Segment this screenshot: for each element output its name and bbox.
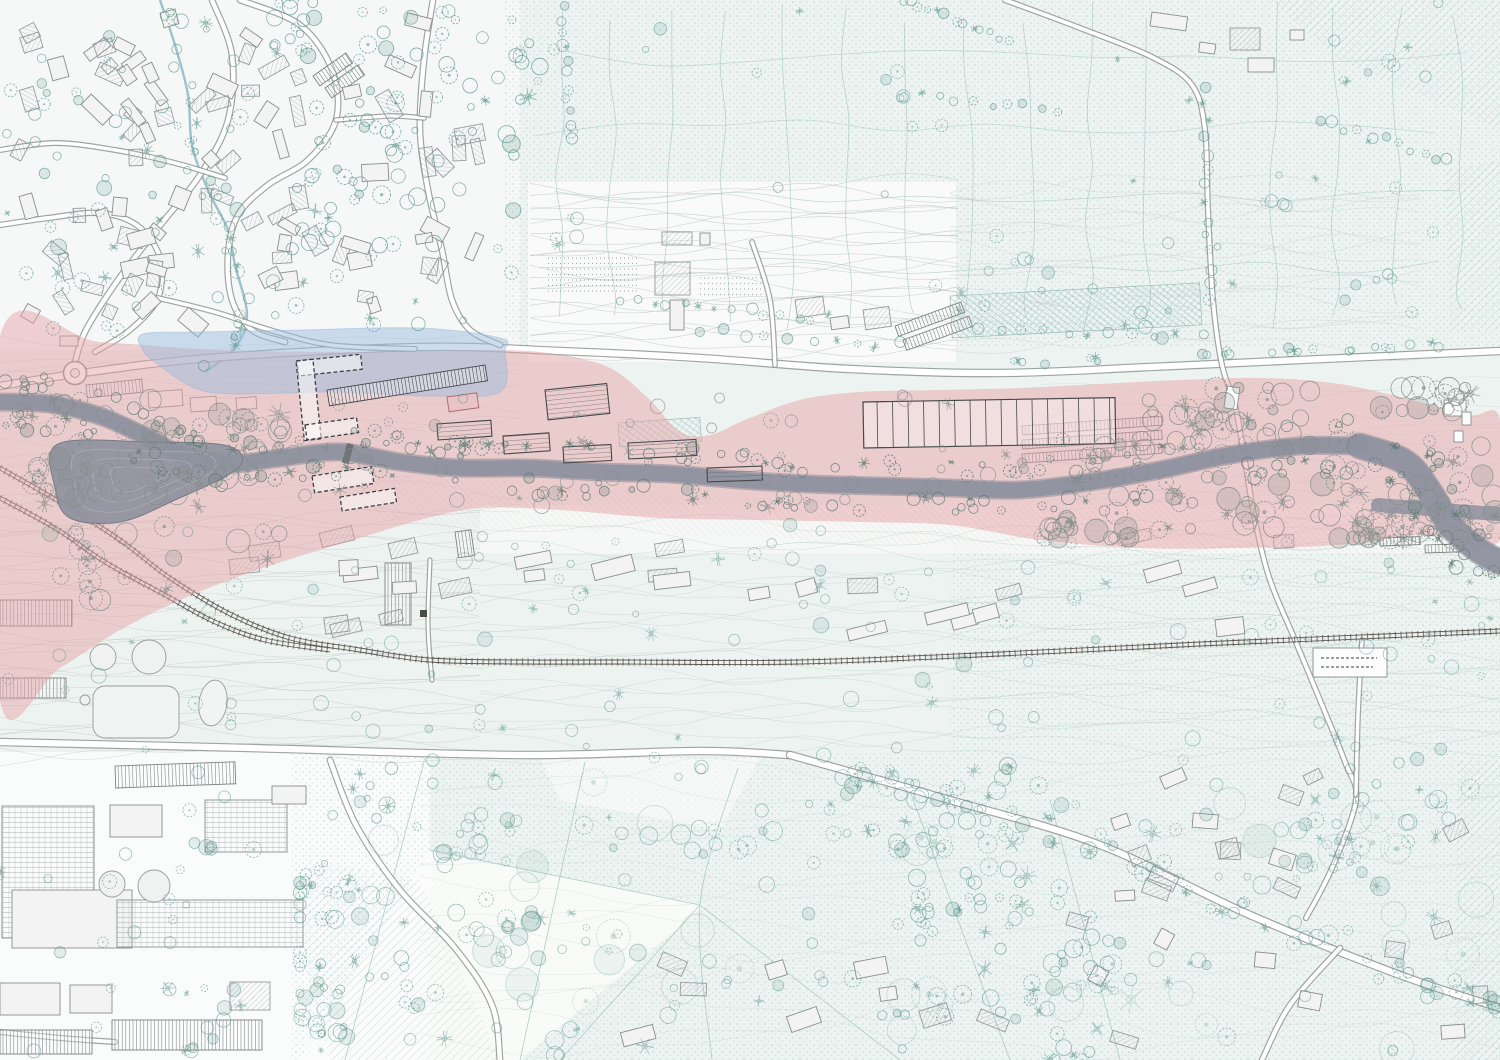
tree-center [433, 46, 435, 48]
tree-center [615, 541, 616, 542]
tree-center [255, 446, 258, 449]
tree-center [1087, 454, 1090, 457]
tree-center [1243, 902, 1245, 904]
tree-center [1080, 946, 1083, 949]
tree-center [406, 985, 408, 987]
tree-center [194, 702, 197, 705]
tree-center [1359, 845, 1362, 848]
tree-center [1049, 458, 1050, 459]
tree-center [857, 343, 858, 344]
tree-center [320, 1033, 321, 1034]
tree-center [1089, 916, 1091, 918]
tree-center [123, 430, 126, 433]
building [700, 233, 710, 245]
tree-center [918, 835, 924, 841]
tree-center [1186, 889, 1188, 891]
building-footprint [73, 208, 86, 223]
tree-center [1056, 902, 1059, 905]
tree-center [305, 873, 307, 875]
tree-center [938, 1003, 943, 1008]
building-footprint [70, 985, 112, 1013]
tree-center [128, 453, 132, 457]
tree-center [1141, 489, 1143, 491]
tree-center [1333, 481, 1336, 484]
tree-center [1015, 900, 1017, 902]
tree-center [336, 275, 338, 277]
tree-center [189, 142, 191, 144]
tree-center [1343, 80, 1344, 81]
tree-center [954, 806, 957, 809]
tree-center [77, 442, 81, 446]
tree-center [762, 315, 764, 317]
tree-center [1114, 990, 1115, 991]
tree-center [97, 474, 100, 477]
houses-topleft [421, 257, 439, 276]
tree-center [168, 287, 171, 290]
tree-center [374, 126, 376, 128]
tree-center [1265, 398, 1268, 401]
tree-center [1039, 469, 1041, 471]
tree-center [770, 419, 773, 422]
tree-center [1326, 844, 1328, 846]
tree-center [932, 930, 934, 932]
tree-center [317, 1021, 319, 1023]
tree-center [479, 853, 481, 855]
tree-center [1014, 262, 1015, 263]
proposal-building [563, 444, 612, 462]
tree-center [872, 829, 874, 831]
tree-center [80, 279, 83, 282]
houses-topleft [415, 233, 433, 245]
tree-center [1455, 991, 1458, 994]
tree-center [1158, 528, 1161, 531]
building [12, 890, 132, 948]
tree-center [582, 824, 585, 827]
tree-center [343, 175, 346, 178]
tree-center [52, 327, 54, 329]
tree-center [404, 146, 406, 148]
masterplan-canvas [0, 0, 1500, 1060]
building [670, 300, 684, 330]
tank-circle [132, 640, 166, 674]
tree-center [510, 271, 512, 273]
building-footprint [1248, 58, 1274, 72]
tree-center [654, 757, 656, 759]
tree-center [303, 892, 305, 894]
tree-center [171, 436, 173, 438]
tree-center [252, 848, 255, 851]
tree-center [402, 406, 404, 408]
tree-center [1293, 942, 1296, 945]
tree-center [172, 919, 174, 921]
tree-center [105, 325, 107, 327]
tree-center [215, 218, 217, 220]
building-footprint [563, 444, 612, 462]
building [0, 983, 60, 1015]
tree-center [911, 126, 913, 128]
building-footprint [1199, 42, 1216, 54]
tree-center [956, 21, 958, 23]
tree-center [58, 406, 61, 409]
tree-center [889, 460, 891, 462]
tree-center [1352, 434, 1353, 435]
tree-center [65, 689, 66, 690]
building-footprint [655, 262, 690, 295]
tree-center [1210, 908, 1212, 910]
tree-center [1332, 465, 1336, 469]
tree-center [321, 918, 324, 921]
tree-center [333, 80, 335, 82]
building-footprint [863, 306, 892, 329]
tree-center [1134, 865, 1137, 868]
tree-center [88, 580, 92, 584]
tree-center [1335, 425, 1337, 427]
tree-center [1040, 534, 1043, 537]
tree-center [1480, 675, 1481, 676]
building [1230, 28, 1260, 50]
tree-center [1031, 998, 1033, 1000]
building-with-label [1313, 648, 1387, 677]
building-footprint [242, 85, 260, 96]
houses-topleft [73, 208, 86, 223]
tree-center [373, 430, 375, 432]
tree-center [485, 898, 488, 901]
tree-center [1198, 447, 1200, 449]
treatment-basin [93, 686, 179, 738]
tank-circle [80, 695, 90, 705]
tree-center [1090, 357, 1091, 358]
tree-center [171, 19, 173, 21]
tree-center [38, 476, 40, 478]
tree-center [1407, 840, 1409, 842]
tree-center [1030, 981, 1033, 984]
tree-center [1100, 833, 1102, 835]
tree-center [1305, 632, 1307, 634]
tree-center [1182, 759, 1184, 761]
tree-center [262, 530, 265, 533]
tree-center [779, 500, 780, 501]
tree-center [194, 151, 195, 152]
tree-center [987, 865, 990, 868]
masterplan-map [0, 0, 1500, 1060]
tree-center [335, 891, 337, 893]
tree-center [1286, 541, 1288, 543]
building-footprint [0, 983, 60, 1015]
tree-center [1366, 957, 1368, 959]
building-footprint [1230, 28, 1260, 50]
tree-center [925, 923, 927, 925]
tree-center [1493, 571, 1495, 573]
building-footprint [112, 197, 128, 217]
tree-center [1378, 978, 1380, 980]
tree-center [780, 455, 781, 456]
tree-center [969, 897, 971, 899]
tree-center [91, 556, 95, 560]
tree-center [1037, 784, 1040, 787]
tree-center [1204, 1023, 1208, 1027]
tree-center [1393, 65, 1395, 67]
houses-topleft [112, 197, 128, 217]
tree-center [1008, 40, 1009, 41]
building-footprint [415, 233, 433, 245]
tree-center [1387, 535, 1391, 539]
tree-center [108, 880, 111, 883]
tree-center [945, 790, 947, 792]
tree-center [1062, 439, 1064, 441]
tree-center [1115, 511, 1119, 515]
tree-center [441, 33, 443, 35]
building [655, 262, 690, 295]
houses-midband [848, 578, 878, 594]
building-footprint [680, 982, 706, 996]
building [272, 786, 306, 804]
tree-center [396, 436, 398, 438]
tree-center [900, 593, 902, 595]
tree-center [737, 848, 740, 851]
tree-center [338, 404, 340, 406]
tree-center [1225, 1035, 1228, 1038]
tree-center [1453, 979, 1455, 981]
tree-center [50, 226, 52, 228]
tree-center [1366, 695, 1368, 697]
building-footprint [421, 257, 439, 276]
tree-center [756, 459, 758, 461]
tree-center [315, 172, 317, 174]
tree-center [934, 284, 936, 286]
tree-center [188, 809, 190, 811]
tree-center [116, 329, 119, 332]
tree-center [233, 585, 236, 588]
tree-center [1007, 103, 1009, 105]
tree-center [999, 897, 1000, 898]
tree-center [1075, 804, 1076, 805]
tree-center [302, 1020, 304, 1022]
tree-center [1311, 865, 1313, 867]
tree-center [591, 780, 596, 785]
parking-rows [0, 1030, 92, 1054]
tree-center [1030, 476, 1031, 477]
tree-center [1393, 846, 1398, 851]
building-footprint [205, 800, 287, 852]
tree-center [1427, 639, 1429, 641]
houses-topleft [357, 290, 373, 304]
tree-center [126, 289, 128, 291]
building-footprint [830, 315, 849, 329]
tree-center [1270, 624, 1272, 626]
tree-center [713, 829, 715, 831]
tree-center [1279, 703, 1281, 705]
tree-center [224, 476, 225, 477]
tree-center [1111, 962, 1114, 965]
tree-center [570, 217, 571, 218]
building [1290, 30, 1304, 40]
tree-center [204, 988, 205, 989]
building-footprint [707, 466, 762, 482]
tree-center [1073, 598, 1075, 600]
tree-center [509, 831, 511, 833]
building-footprint [1441, 1024, 1465, 1039]
tree-center [1080, 984, 1082, 986]
tree-center [695, 489, 696, 490]
tree-center [984, 305, 986, 307]
tree-center [1428, 440, 1430, 442]
building-footprint [1290, 30, 1304, 40]
tree-center [565, 98, 566, 99]
tree-center [327, 891, 329, 893]
tree-center [1057, 112, 1058, 113]
tree-center [1437, 521, 1440, 524]
tree-center [296, 625, 298, 627]
tree-center [568, 89, 570, 91]
tree-center [1088, 477, 1092, 481]
tree-center [308, 181, 310, 183]
building-footprint [201, 188, 212, 213]
tree-center [119, 490, 123, 494]
tree-center [537, 80, 538, 81]
tree-center [9, 89, 11, 91]
tree-center [1004, 833, 1007, 836]
tree-center [212, 189, 214, 191]
tree-center [1208, 299, 1210, 301]
tree-center [1422, 386, 1426, 390]
building [830, 315, 849, 329]
tree-center [809, 320, 810, 321]
tree-center [1312, 348, 1313, 349]
tree-center [1178, 878, 1180, 880]
tree-center [1395, 187, 1397, 189]
tree-center [1125, 536, 1128, 539]
tree-center [198, 424, 201, 427]
houses-topleft [272, 251, 292, 264]
tree-center [238, 314, 240, 316]
tree-center [16, 424, 17, 425]
tree-center [1214, 386, 1218, 390]
bridge-deck [1462, 412, 1471, 425]
building-footprint [272, 786, 306, 804]
tank-circle [138, 870, 170, 902]
tree-center [498, 448, 500, 450]
tree-center [1381, 411, 1384, 414]
building-footprint [848, 578, 878, 594]
building-footprint [1115, 890, 1135, 901]
tree-center [1432, 231, 1434, 233]
tree-center [358, 59, 360, 61]
tree-center [779, 314, 780, 315]
tree-center [1264, 201, 1265, 202]
tree-center [1263, 510, 1267, 514]
tree-center [1156, 870, 1158, 872]
tree-center [1347, 929, 1349, 931]
bridge-deck [1454, 431, 1463, 442]
building-footprint [662, 232, 692, 245]
tree-center [931, 839, 937, 845]
houses-topleft [419, 91, 433, 117]
tree-center [828, 809, 830, 811]
tree-center [1175, 828, 1177, 830]
tree-center [76, 528, 78, 530]
tree-center [370, 470, 371, 471]
building [205, 800, 287, 852]
tree-center [1356, 129, 1358, 131]
tree-center [505, 861, 507, 863]
tree-center [1399, 976, 1401, 978]
tree-center [321, 464, 322, 465]
tree-center [1339, 853, 1341, 855]
tree-center [1131, 332, 1133, 334]
tree-center [966, 475, 968, 477]
tree-center [299, 966, 301, 968]
houses-topleft [242, 85, 260, 96]
building-footprint [670, 300, 684, 330]
houses-bottomright [1441, 1024, 1465, 1039]
tree-center [1115, 475, 1118, 478]
tree-center [737, 966, 742, 971]
tree-center [97, 208, 100, 211]
tree-center [858, 509, 860, 511]
tree-center [1460, 951, 1466, 957]
tree-center [894, 468, 896, 470]
tree-center [1249, 576, 1252, 579]
tree-center [1374, 463, 1376, 465]
tree-center [79, 399, 82, 402]
tree-center [1220, 455, 1224, 459]
building-footprint [1254, 952, 1276, 969]
tree-center [674, 1005, 676, 1007]
tree-center [54, 425, 57, 428]
tree-center [1398, 142, 1399, 143]
tree-center [986, 842, 989, 845]
tree-center [923, 893, 925, 895]
tree-center [813, 862, 815, 864]
building [662, 232, 692, 245]
tree-center [299, 440, 301, 442]
tree-center [295, 304, 298, 307]
tree-center [545, 545, 546, 546]
tree-center [1384, 347, 1385, 348]
tree-center [1209, 249, 1210, 250]
tree-center [1411, 311, 1413, 313]
tree-center [1329, 465, 1331, 467]
tree-center [75, 91, 77, 93]
parking-rows [115, 762, 236, 788]
tree-center [1451, 536, 1455, 540]
tree-center [1369, 839, 1375, 845]
proposal-building [437, 420, 492, 440]
tree-center [1165, 481, 1168, 484]
tree-center [583, 999, 588, 1004]
tree-center [1485, 572, 1486, 573]
tree-center [404, 1001, 406, 1003]
tree-center [394, 101, 397, 104]
tree-center [416, 826, 417, 827]
tree-center [320, 228, 322, 230]
tree-center [1073, 595, 1075, 597]
proposal-building [707, 466, 762, 482]
tree-center [32, 480, 36, 484]
tree-center [1220, 427, 1224, 431]
tree-center [558, 578, 560, 580]
houses-bottomright [1385, 941, 1406, 960]
tree-center [435, 96, 437, 98]
tree-center [1441, 806, 1443, 808]
tree-center [927, 9, 928, 10]
tree-center [610, 933, 616, 939]
tree-center [961, 993, 964, 996]
houses-midband [524, 569, 545, 582]
tree-center [505, 917, 508, 920]
tree-center [1029, 999, 1031, 1001]
tree-center [1254, 474, 1258, 478]
